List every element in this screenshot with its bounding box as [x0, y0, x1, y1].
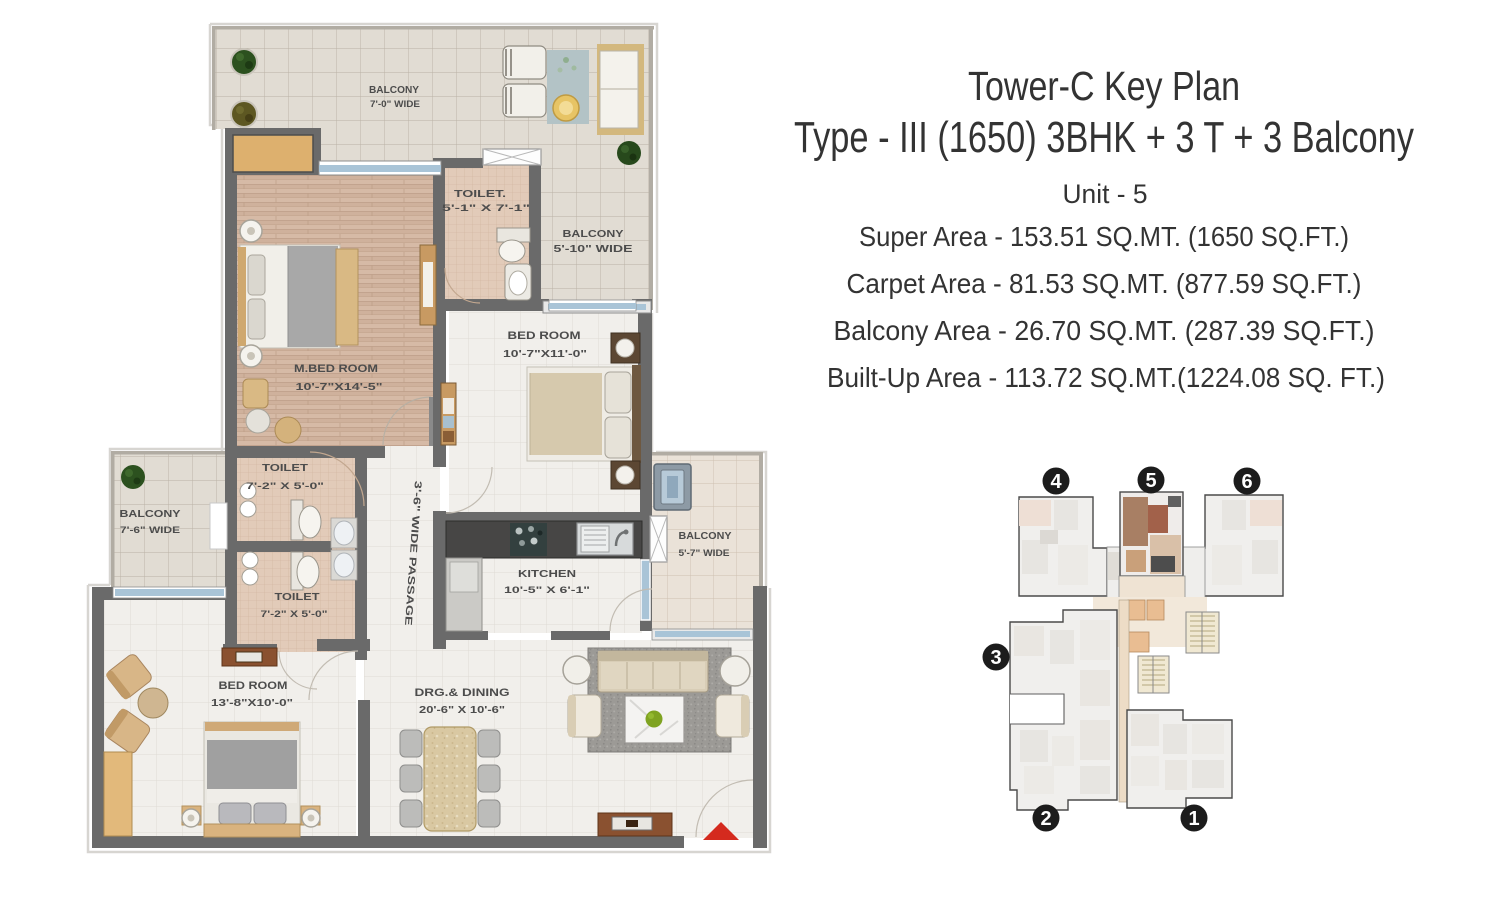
svg-text:1: 1	[1188, 808, 1199, 830]
svg-text:Type - III (1650) 3BHK + 3 T +: Type - III (1650) 3BHK + 3 T + 3 Balcony	[794, 113, 1414, 162]
svg-text:Carpet Area - 81.53 SQ.MT. (87: Carpet Area - 81.53 SQ.MT. (877.59 SQ.FT…	[847, 268, 1362, 299]
svg-text:TOILET: TOILET	[262, 462, 309, 474]
svg-text:TOILET.: TOILET.	[454, 188, 506, 200]
svg-text:7'-2" X 5'-0": 7'-2" X 5'-0"	[246, 481, 324, 492]
svg-text:Built-Up Area - 113.72 SQ.MT.(: Built-Up Area - 113.72 SQ.MT.(1224.08 SQ…	[827, 362, 1385, 393]
svg-text:10'-7"X11'-0": 10'-7"X11'-0"	[503, 349, 587, 360]
svg-text:20'-6" X 10'-6": 20'-6" X 10'-6"	[419, 705, 505, 716]
svg-text:M.BED ROOM: M.BED ROOM	[294, 363, 378, 375]
svg-text:DRG.& DINING: DRG.& DINING	[415, 687, 510, 699]
svg-text:3: 3	[990, 647, 1001, 669]
svg-text:BALCONY: BALCONY	[679, 530, 732, 542]
svg-text:5'-7" WIDE: 5'-7" WIDE	[679, 548, 730, 559]
svg-text:TOILET: TOILET	[275, 591, 321, 603]
svg-text:BALCONY: BALCONY	[120, 509, 181, 520]
svg-text:Tower-C Key Plan: Tower-C Key Plan	[968, 63, 1240, 109]
svg-text:BALCONY: BALCONY	[369, 84, 419, 96]
svg-text:5'-1" X 7'-1": 5'-1" X 7'-1"	[442, 203, 530, 214]
svg-text:5: 5	[1145, 470, 1156, 492]
svg-text:10'-7"X14'-5": 10'-7"X14'-5"	[296, 382, 383, 393]
svg-text:BALCONY: BALCONY	[563, 228, 624, 240]
svg-text:KITCHEN: KITCHEN	[518, 568, 576, 580]
svg-text:7'-2" X 5'-0": 7'-2" X 5'-0"	[261, 609, 328, 620]
svg-text:7'-6" WIDE: 7'-6" WIDE	[120, 525, 180, 536]
svg-text:Unit - 5: Unit - 5	[1063, 179, 1148, 209]
svg-text:4: 4	[1050, 471, 1062, 493]
svg-text:13'-8"X10'-0": 13'-8"X10'-0"	[211, 698, 293, 709]
svg-text:Balcony Area - 26.70 SQ.MT. (2: Balcony Area - 26.70 SQ.MT. (287.39 SQ.F…	[834, 315, 1375, 346]
svg-text:BED ROOM: BED ROOM	[508, 330, 581, 342]
svg-text:BED ROOM: BED ROOM	[219, 680, 288, 692]
svg-text:10'-5" X 6'-1": 10'-5" X 6'-1"	[504, 585, 590, 596]
svg-text:2: 2	[1040, 808, 1051, 830]
svg-text:Super Area - 153.51 SQ.MT. (16: Super Area - 153.51 SQ.MT. (1650 SQ.FT.)	[859, 221, 1349, 252]
svg-text:5'-10" WIDE: 5'-10" WIDE	[554, 244, 633, 255]
svg-text:7'-0" WIDE: 7'-0" WIDE	[370, 99, 420, 110]
svg-text:6: 6	[1241, 471, 1252, 493]
